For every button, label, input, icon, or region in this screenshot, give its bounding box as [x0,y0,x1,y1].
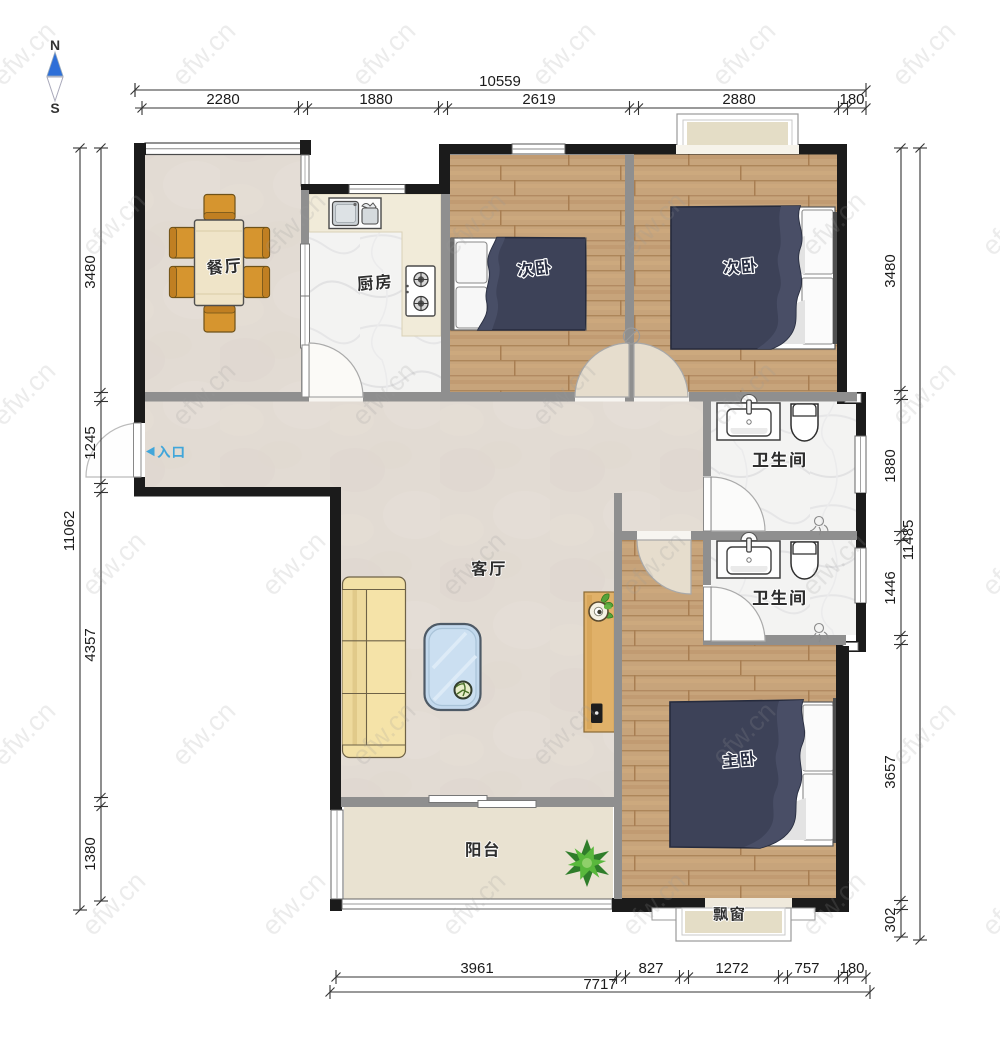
svg-text:1880: 1880 [359,91,392,108]
svg-text:7717: 7717 [583,976,616,993]
svg-text:302: 302 [882,907,899,932]
svg-text:180: 180 [839,960,864,977]
svg-text:180: 180 [839,91,864,108]
svg-text:1245: 1245 [82,426,99,459]
svg-text:2619: 2619 [522,91,555,108]
svg-text:2880: 2880 [722,91,755,108]
svg-text:1380: 1380 [82,837,99,870]
svg-text:1880: 1880 [882,449,899,482]
svg-text:757: 757 [794,960,819,977]
svg-text:1272: 1272 [715,960,748,977]
svg-text:3961: 3961 [460,960,493,977]
svg-text:10559: 10559 [479,73,521,90]
svg-text:3480: 3480 [882,254,899,287]
svg-text:4357: 4357 [82,628,99,661]
svg-text:827: 827 [638,960,663,977]
svg-text:2280: 2280 [206,91,239,108]
svg-text:11485: 11485 [900,520,917,561]
svg-text:S: S [50,100,59,116]
svg-text:1446: 1446 [882,571,899,604]
svg-text:11062: 11062 [61,511,78,552]
